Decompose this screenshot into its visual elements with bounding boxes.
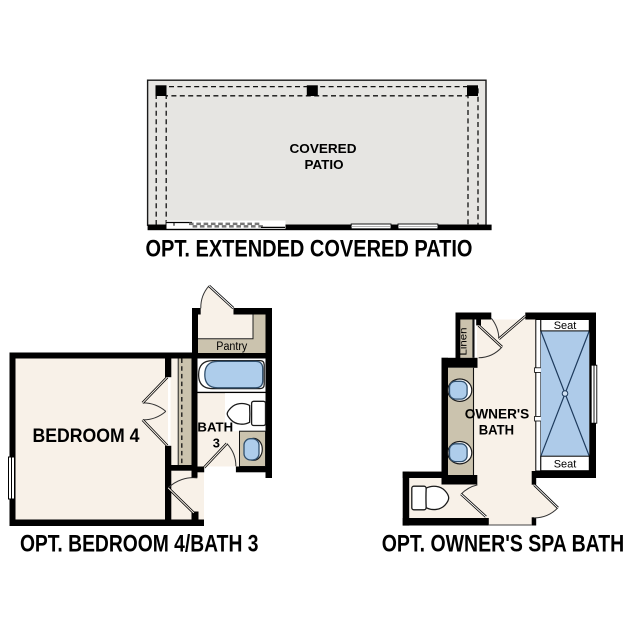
svg-text:BATH: BATH (479, 422, 514, 437)
svg-text:OPT. BEDROOM 4/BATH 3: OPT. BEDROOM 4/BATH 3 (20, 531, 259, 558)
svg-text:PATIO: PATIO (305, 157, 344, 172)
svg-text:OPT. OWNER'S SPA BATH: OPT. OWNER'S SPA BATH (382, 531, 625, 558)
svg-text:Pantry: Pantry (216, 341, 247, 353)
svg-text:BEDROOM 4: BEDROOM 4 (33, 426, 140, 447)
svg-text:3: 3 (213, 435, 220, 450)
svg-text:OWNER'S: OWNER'S (465, 406, 530, 421)
svg-text:BATH: BATH (197, 419, 233, 434)
svg-text:COVERED: COVERED (290, 141, 357, 156)
svg-text:Seat: Seat (554, 320, 577, 332)
svg-text:OPT. EXTENDED COVERED PATIO: OPT. EXTENDED COVERED PATIO (146, 235, 473, 262)
svg-text:Seat: Seat (554, 458, 577, 470)
